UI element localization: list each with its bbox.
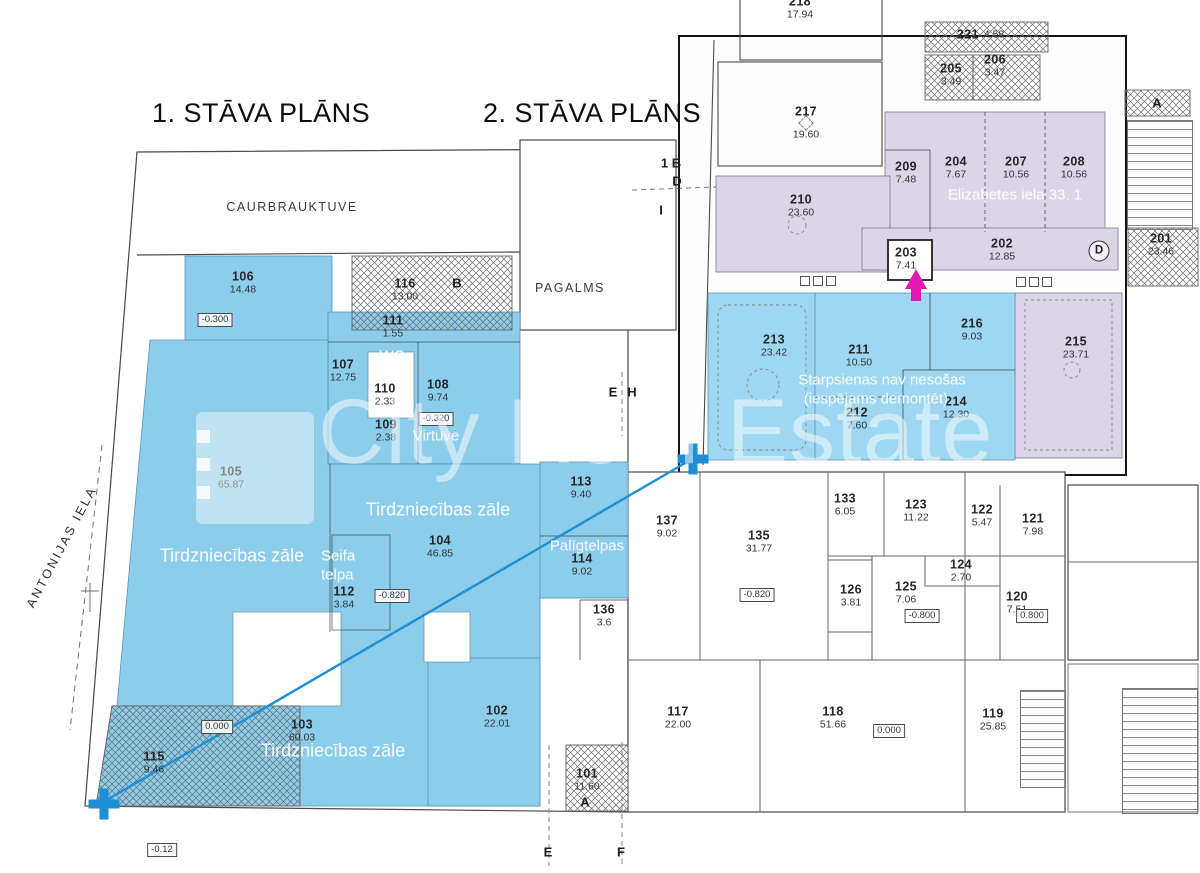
zone-label-pagalms: PAGALMS xyxy=(535,281,605,295)
room-area: 31.77 xyxy=(746,543,772,554)
room-number: 202 xyxy=(989,238,1015,252)
room-125-label: 1257.06 xyxy=(895,581,917,606)
watermark-logo xyxy=(196,412,314,524)
floor2-staircase xyxy=(1127,120,1193,230)
room-area: 23.60 xyxy=(788,207,814,218)
room-133-label: 1336.05 xyxy=(834,493,856,518)
room-number: 207 xyxy=(1003,156,1029,170)
elevation-marker: -0.820 xyxy=(740,588,775,602)
room-area: 7.06 xyxy=(895,594,917,605)
axis-letter-f: F xyxy=(617,845,625,860)
room-area: 6.05 xyxy=(834,506,856,517)
room-area: 7.67 xyxy=(945,169,967,180)
overlay-note-line2: (iespējams demontēt) xyxy=(804,391,948,408)
room-136-label: 1363.6 xyxy=(593,604,615,629)
street-name-label: ANTONIJAS IELA xyxy=(24,484,100,610)
room-area: 14.48 xyxy=(230,284,256,295)
room-number: 102 xyxy=(484,705,510,719)
room-number: 136 xyxy=(593,604,615,618)
room-area: 3.49 xyxy=(940,76,962,87)
room-area: 23.42 xyxy=(761,347,787,358)
overlay-virtuve: Virtuve xyxy=(413,428,459,445)
room-area: 7.41 xyxy=(895,260,917,271)
floor2-title: 2. STĀVA PLĀNS xyxy=(483,98,701,129)
room-number: 217 xyxy=(793,106,819,120)
room-121-label: 1217.98 xyxy=(1022,513,1044,538)
watermark-logo-dot xyxy=(197,486,210,499)
room-area: 17.94 xyxy=(787,9,813,20)
room-number: 112 xyxy=(333,586,354,600)
room-209-label: 2097.48 xyxy=(895,161,917,186)
axis-letter-b: B xyxy=(452,276,461,291)
room-number: 107 xyxy=(330,359,356,373)
room-area: 10.50 xyxy=(846,357,872,368)
room-101-label: 10111.60 xyxy=(574,768,600,793)
room-137-label: 1379.02 xyxy=(656,515,678,540)
room-202-label: 20212.85 xyxy=(989,238,1015,263)
room-number: 221 xyxy=(957,28,979,42)
zone-label-caurbrauktuve: CAURBRAUKTUVE xyxy=(226,200,357,214)
room-area: 65.87 xyxy=(218,479,244,490)
room-number: 204 xyxy=(945,156,967,170)
room-area: 9.02 xyxy=(571,566,592,577)
room-number: 106 xyxy=(230,271,256,285)
room-area: 3.6 xyxy=(593,617,615,628)
room-number: 114 xyxy=(571,553,592,567)
room-number: 133 xyxy=(834,493,856,507)
axis-letter-i: I xyxy=(659,203,663,218)
room-area: 9.46 xyxy=(143,764,164,775)
room-216-label: 2169.03 xyxy=(961,318,983,343)
room-115-label: 1159.46 xyxy=(143,751,164,776)
axis-letter-h: H xyxy=(627,385,636,400)
room-217-label: 21719.60 xyxy=(793,106,819,141)
room-area: 9.03 xyxy=(961,331,983,342)
axis-letter-a: A xyxy=(580,795,589,810)
watermark-logo-dot xyxy=(197,430,210,443)
room-116-label: 11613.00 xyxy=(392,278,418,303)
room-104-label: 10446.85 xyxy=(427,535,453,560)
room-area: 12.30 xyxy=(943,409,969,420)
room-area: 11.60 xyxy=(574,781,600,792)
room-area: 3.81 xyxy=(840,597,862,608)
room-area: 5.47 xyxy=(971,517,993,528)
room-area: 2.33 xyxy=(374,396,395,407)
room-number: 208 xyxy=(1061,156,1087,170)
plus-marker-1 xyxy=(89,789,120,820)
elevation-marker: -0.800 xyxy=(905,609,940,623)
room-area: 11.22 xyxy=(903,512,929,523)
room-number: 108 xyxy=(427,379,449,393)
room-number: 212 xyxy=(846,407,868,421)
room-area: 7.60 xyxy=(846,420,868,431)
axis-letter-d-circled: D xyxy=(1089,241,1110,262)
room-210-label: 21023.60 xyxy=(788,194,814,219)
room-number: 116 xyxy=(392,278,418,292)
room-area: 3.47 xyxy=(984,67,1006,78)
room-number: 115 xyxy=(143,751,164,765)
room-112-label: 1123.84 xyxy=(333,586,354,611)
room-area: 1.55 xyxy=(383,328,404,339)
room-number: 118 xyxy=(820,706,846,720)
floorplan-page: 1. STĀVA PLĀNS 2. STĀVA PLĀNS CAURBRAUKT… xyxy=(0,0,1200,873)
room-213-label: 21323.42 xyxy=(761,334,787,359)
room-208-label: 20810.56 xyxy=(1061,156,1087,181)
room-number: 211 xyxy=(846,344,872,358)
room-number: 113 xyxy=(570,476,591,490)
room-204-label: 2047.67 xyxy=(945,156,967,181)
room-206-label: 2063.47 xyxy=(984,54,1006,79)
elevation-marker: -0.300 xyxy=(198,313,233,327)
floor1-staircase-119 xyxy=(1020,690,1066,788)
room-111-label: 1111.55 xyxy=(383,315,404,340)
elevation-marker: -0.320 xyxy=(419,412,454,426)
room-area: 25.85 xyxy=(980,721,1006,732)
room-number: 135 xyxy=(746,530,772,544)
room-area: 23.71 xyxy=(1063,349,1089,360)
room-number: 103 xyxy=(289,719,315,733)
room-number: 117 xyxy=(665,706,691,720)
room-108-label: 1089.74 xyxy=(427,379,449,404)
street-boundary-lines xyxy=(70,152,137,806)
room-area: 10.56 xyxy=(1003,169,1029,180)
room-105-label: 10565.87 xyxy=(218,466,244,491)
room-number: 203 xyxy=(895,247,917,261)
axis-letter-e: E xyxy=(544,845,553,860)
room-number: 101 xyxy=(574,768,600,782)
room-area: 2.70 xyxy=(950,572,972,583)
room-215-label: 21523.71 xyxy=(1063,336,1089,361)
room-118-label: 11851.66 xyxy=(820,706,846,731)
room-number: 110 xyxy=(374,383,395,397)
elevation-marker: -0.12 xyxy=(147,843,177,857)
elevation-marker: 0.800 xyxy=(1016,609,1048,623)
room-117-label: 11722.00 xyxy=(665,706,691,731)
fixture-squares-2 xyxy=(1016,277,1052,287)
room-area: 10.56 xyxy=(1061,169,1087,180)
room-102-label: 10222.01 xyxy=(484,705,510,730)
elevation-marker: -0.820 xyxy=(375,589,410,603)
room-area: 13.00 xyxy=(392,291,418,302)
room-126-label: 1263.81 xyxy=(840,584,862,609)
room-201-label: 20123.46 xyxy=(1148,233,1174,258)
room-110-label: 1102.33 xyxy=(374,383,395,408)
room-area: 12.85 xyxy=(989,251,1015,262)
room-114-label: 1149.02 xyxy=(571,553,592,578)
room-221-label: 2214.58 xyxy=(957,26,1010,43)
room-number: 126 xyxy=(840,584,862,598)
room-119-label: 11925.85 xyxy=(980,708,1006,733)
room-number: 215 xyxy=(1063,336,1089,350)
room-area: 9.40 xyxy=(570,489,591,500)
room-area: 3.84 xyxy=(333,599,354,610)
room-number: 111 xyxy=(383,315,404,329)
room-area: 22.01 xyxy=(484,718,510,729)
elevation-marker: 0.000 xyxy=(873,724,905,738)
room-124-label: 1242.70 xyxy=(950,559,972,584)
room-212-label: 2127.60 xyxy=(846,407,868,432)
room-number: 120 xyxy=(1006,591,1028,605)
floor1-hatched-areas xyxy=(96,256,628,811)
overlay-seifa-telpa: Seifa telpa xyxy=(321,547,375,585)
axis-letter-a2: A xyxy=(1152,96,1161,111)
fixture-squares-1 xyxy=(800,276,836,286)
room-211-label: 21110.50 xyxy=(846,344,872,369)
overlay-note-line1: Starpsienas nav nesošas xyxy=(798,372,966,389)
room-area: 23.46 xyxy=(1148,246,1174,257)
overlay-tirdzniecibas-zale-3: Tirdzniecības zāle xyxy=(261,741,405,762)
room-122-label: 1225.47 xyxy=(971,504,993,529)
room-207-label: 20710.56 xyxy=(1003,156,1029,181)
room-area: 12.75 xyxy=(330,372,356,383)
room-number: 105 xyxy=(218,466,244,480)
room-number: 210 xyxy=(788,194,814,208)
room-area: 9.02 xyxy=(656,528,678,539)
room-number: 122 xyxy=(971,504,993,518)
room-number: 216 xyxy=(961,318,983,332)
room-number: 213 xyxy=(761,334,787,348)
room-area: 46.85 xyxy=(427,548,453,559)
room-123-label: 12311.22 xyxy=(903,499,929,524)
room-area: 7.98 xyxy=(1022,526,1044,537)
elevation-marker: 0.000 xyxy=(201,720,233,734)
room-number: 125 xyxy=(895,581,917,595)
overlay-tirdzniecibas-zale-1: Tirdzniecības zāle xyxy=(160,546,304,567)
room-number: 201 xyxy=(1148,233,1174,247)
axis-letter-1b: 1 B xyxy=(661,156,681,171)
room-205-label: 2053.49 xyxy=(940,63,962,88)
room-203-label: 2037.41 xyxy=(895,247,917,272)
room-area: 7.48 xyxy=(895,174,917,185)
room-area: 22.00 xyxy=(665,719,691,730)
room-number: 123 xyxy=(903,499,929,513)
axis-letter-d: D xyxy=(672,174,681,189)
room-218-label: 21817.94 xyxy=(787,0,813,20)
floor1-highlight-blue xyxy=(96,256,628,806)
room-number: 109 xyxy=(375,419,397,433)
floor1-staircase-right xyxy=(1122,688,1198,814)
watermark-logo-dot xyxy=(197,458,210,471)
room-number: 209 xyxy=(895,161,917,175)
room-number: 137 xyxy=(656,515,678,529)
room-area: 9.74 xyxy=(427,392,449,403)
room-109-label: 1092.38 xyxy=(375,419,397,444)
room-106-label: 10614.48 xyxy=(230,271,256,296)
room-number: 104 xyxy=(427,535,453,549)
room-area: 2.38 xyxy=(375,432,397,443)
room-number: 121 xyxy=(1022,513,1044,527)
overlay-tirdzniecibas-zale-2: Tirdzniecības zāle xyxy=(366,500,510,521)
room-number: 206 xyxy=(984,54,1006,68)
room-107-label: 10712.75 xyxy=(330,359,356,384)
room-number: 205 xyxy=(940,63,962,77)
room-area: 4.58 xyxy=(984,29,1004,40)
room-area: 51.66 xyxy=(820,719,846,730)
room-113-label: 1139.40 xyxy=(570,476,591,501)
floor1-white-cutouts xyxy=(233,352,470,706)
axis-letter-e2: E xyxy=(609,385,618,400)
floor1-title: 1. STĀVA PLĀNS xyxy=(152,98,370,129)
overlay-wc: WC xyxy=(380,348,405,365)
overlay-address: Elizabetes iela 33. 1 xyxy=(948,187,1082,204)
room-number: 124 xyxy=(950,559,972,573)
room-number: 119 xyxy=(980,708,1006,722)
room-area: 19.60 xyxy=(793,129,819,140)
room-135-label: 13531.77 xyxy=(746,530,772,555)
overlay-paligtelpas: Palīgtelpas xyxy=(550,538,624,555)
